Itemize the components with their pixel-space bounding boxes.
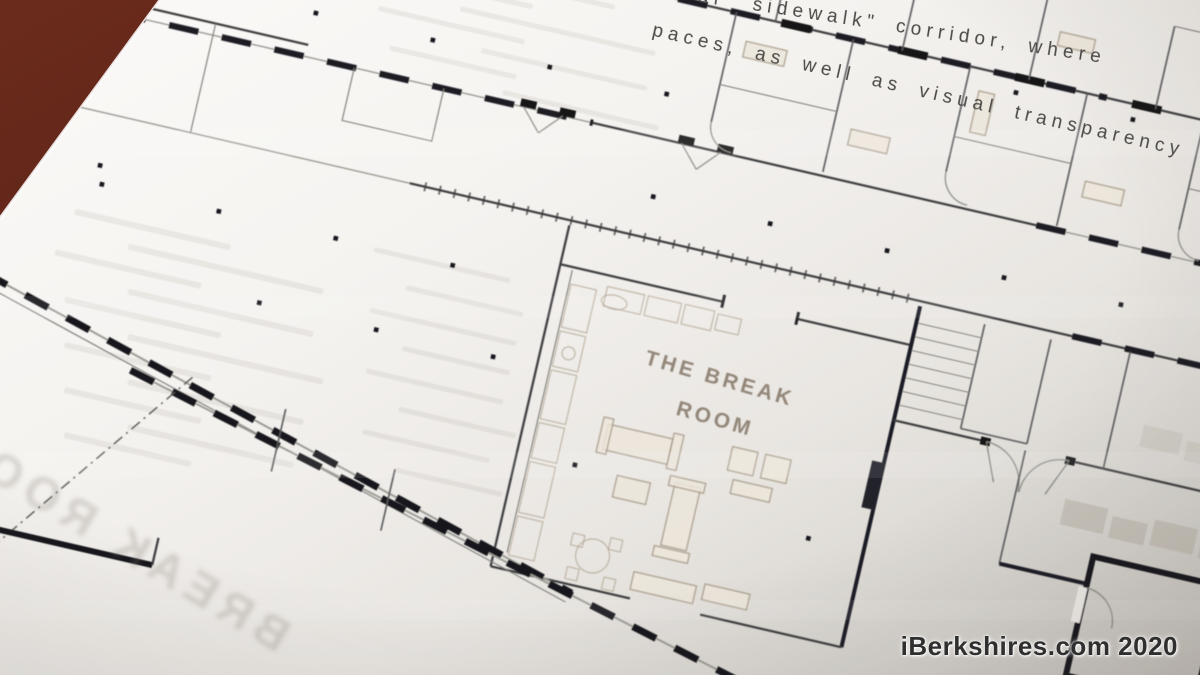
watermark-credit: iBerkshires.com 2020 xyxy=(901,631,1178,662)
photo-frame: THE BREAK ROOM xyxy=(0,0,1200,675)
